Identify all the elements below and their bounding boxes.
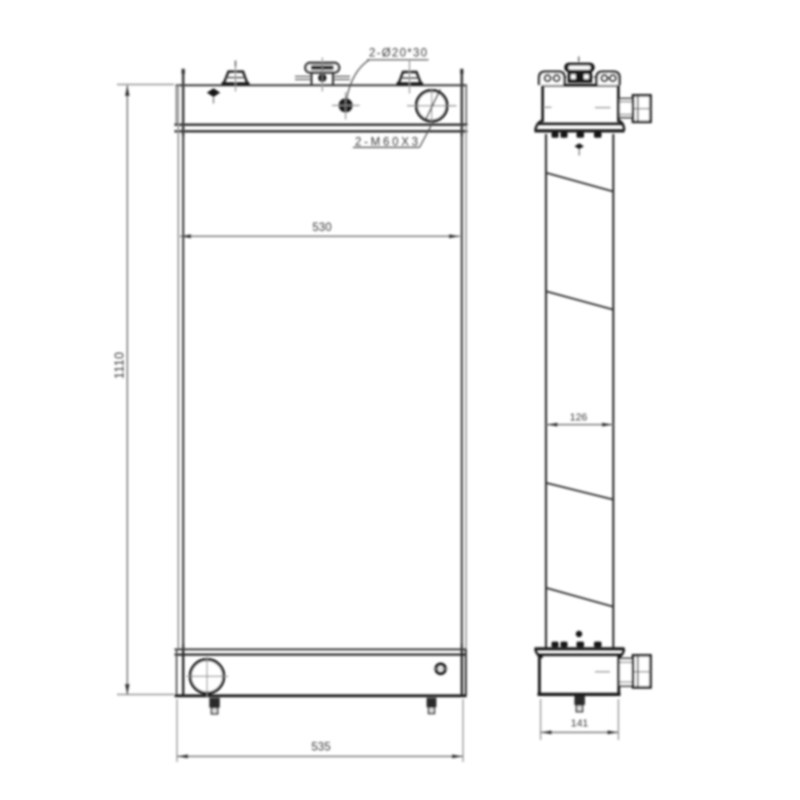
svg-text:126: 126	[570, 412, 588, 424]
svg-text:141: 141	[571, 718, 589, 730]
svg-text:2-Ø20*30: 2-Ø20*30	[369, 48, 427, 60]
svg-text:530: 530	[312, 222, 331, 234]
svg-text:2-M60X3: 2-M60X3	[355, 136, 418, 148]
svg-text:535: 535	[311, 742, 330, 754]
svg-text:1110: 1110	[113, 352, 127, 379]
